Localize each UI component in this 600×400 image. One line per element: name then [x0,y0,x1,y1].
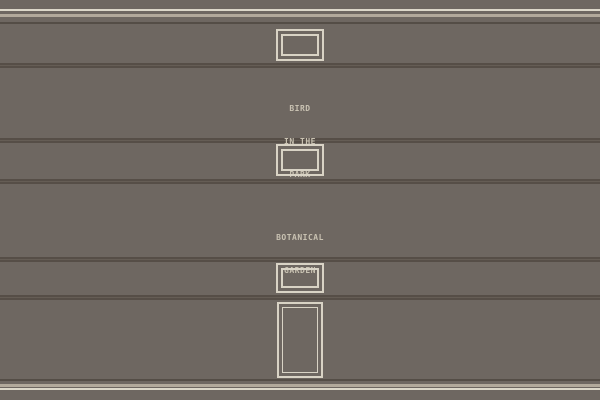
picture-frame-middle[interactable] [276,144,324,176]
wall-groove [0,63,600,68]
picture-frame-inner-moulding [281,149,319,171]
bottom-trim-dark-line [0,379,600,381]
picture-frame-inner-moulding [281,34,319,56]
top-trim-dark-line [0,22,600,24]
location-label-bird-in-the-park: BIRD IN THE PARK [230,81,370,202]
top-trim-beige-line [0,14,600,17]
door-frame[interactable] [277,302,323,378]
picture-frame-top[interactable] [276,29,324,61]
label-line: BOTANICAL [230,232,370,243]
door-frame-inner-moulding [282,307,318,373]
top-trim-bright-line [0,9,600,11]
hallway-wall: BIRD IN THE PARK BOTANICAL GARDEN [0,0,600,400]
label-line: BIRD [230,103,370,114]
picture-frame-lower[interactable] [276,263,324,293]
bottom-trim-bright-line [0,388,600,390]
bottom-trim-beige-line [0,384,600,387]
picture-frame-inner-moulding [281,268,319,288]
